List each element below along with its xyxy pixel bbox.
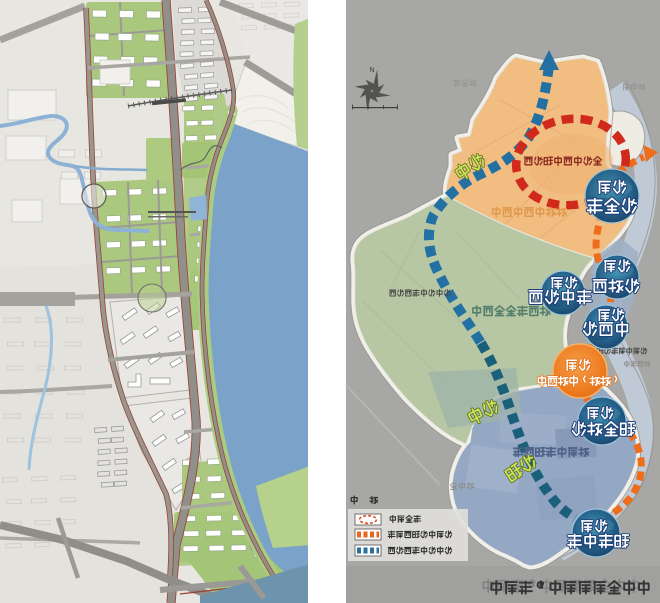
svg-text:N: N <box>369 67 374 74</box>
